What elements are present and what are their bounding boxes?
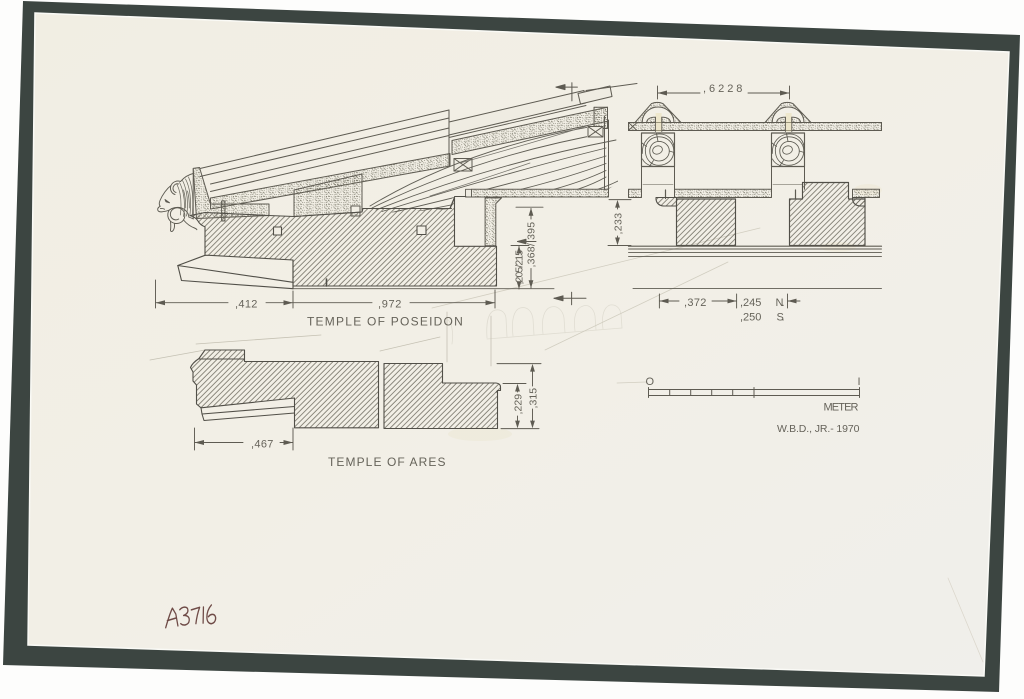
svg-text:,368/,395: ,368/,395 <box>526 222 538 268</box>
svg-text:,250: ,250 <box>740 312 762 324</box>
svg-text:,972: ,972 <box>378 299 402 311</box>
svg-text:TEMPLE OF ARES: TEMPLE OF ARES <box>328 455 447 469</box>
svg-text:METER: METER <box>824 402 860 414</box>
svg-text:TEMPLE OF POSEIDON: TEMPLE OF POSEIDON <box>307 315 464 329</box>
svg-text:,229: ,229 <box>513 394 525 415</box>
svg-text:S.: S. <box>777 312 785 324</box>
svg-text:,315: ,315 <box>528 388 540 409</box>
svg-text:,205/215: ,205/215 <box>514 250 526 285</box>
svg-text:I: I <box>858 376 861 388</box>
svg-text:,372: ,372 <box>684 297 707 309</box>
svg-text:O: O <box>646 376 655 388</box>
svg-text:,245: ,245 <box>740 297 762 309</box>
svg-text:,233: ,233 <box>613 213 625 235</box>
svg-text:W.B.D., JR.- 1970: W.B.D., JR.- 1970 <box>777 423 860 435</box>
svg-text:N.: N. <box>776 297 785 309</box>
svg-text:,412: ,412 <box>235 299 258 311</box>
svg-text:,467: ,467 <box>251 439 274 451</box>
svg-text:,6228: ,6228 <box>703 83 745 95</box>
